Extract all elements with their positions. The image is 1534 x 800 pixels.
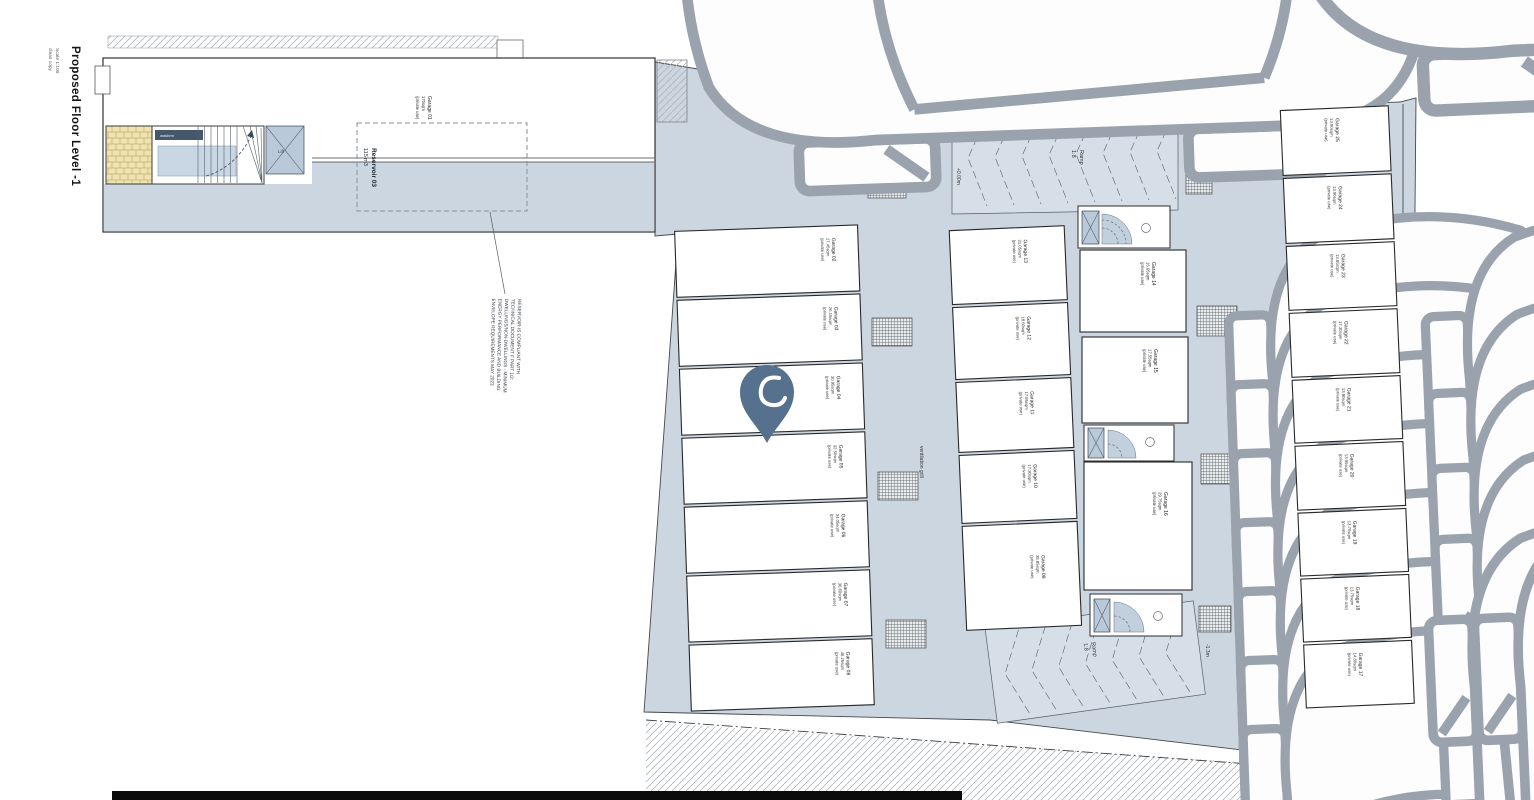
svg-text:-1.3m: -1.3m [1204,644,1210,657]
svg-text:30.95sqm: 30.95sqm [830,376,835,395]
svg-text:(private use): (private use) [1333,321,1338,345]
strip-top-step [497,40,523,58]
compliance-note: RESERVOIR IS COMPLIANT WITH TECHNICAL DO… [489,299,522,393]
ventilation-grill-label: ventilation grill [918,446,924,478]
page-note: clean copy [47,48,53,72]
ventilation-grill [878,472,918,500]
svg-text:(private use): (private use) [1327,186,1332,210]
svg-text:ventilation grill: ventilation grill [918,446,924,478]
svg-text:(private use): (private use) [1012,240,1018,264]
svg-text:(private use): (private use) [827,445,832,469]
svg-text:13.90sqm: 13.90sqm [1332,186,1337,205]
garage-bay-13 [949,226,1067,305]
svg-text:17.30sqm: 17.30sqm [1338,321,1343,340]
svg-text:170sqm: 170sqm [421,96,426,111]
ventilation-grill [872,318,912,346]
svg-text:(private use): (private use) [1335,388,1340,412]
svg-text:1:8: 1:8 [1082,643,1089,651]
svg-text:32.50sqm: 32.50sqm [833,445,838,464]
svg-text:(private use): (private use) [1015,317,1021,341]
svg-text:(private use): (private use) [832,583,837,607]
page-scale: Scale 1:100 [54,48,60,74]
svg-text:(private use): (private use) [1029,555,1035,579]
svg-text:(private use): (private use) [1022,464,1028,488]
svg-text:Reservoir 03: Reservoir 03 [370,148,377,187]
svg-text:13.90sqm: 13.90sqm [1329,118,1334,137]
svg-text:(private use): (private use) [822,307,827,331]
ramp-top-level-start: +0.00m [955,168,961,185]
svg-text:13.85sqm: 13.85sqm [1335,254,1340,273]
garage-bay-16 [1084,462,1192,590]
svg-text:16.05sqm: 16.05sqm [1146,262,1151,281]
svg-text:(private use): (private use) [825,376,830,400]
garage-bay-15 [1082,337,1188,423]
svg-text:13.95sqm: 13.95sqm [1344,454,1349,473]
svg-text:DWELLINGS/NON-DWELLINGS - MINI: DWELLINGS/NON-DWELLINGS - MINIMUM [502,299,509,393]
svg-text:13.70sqm: 13.70sqm [1347,521,1352,540]
svg-text:(private use): (private use) [1324,118,1329,142]
svg-text:ENVELOPE REQUIREMENTS MAY 2023: ENVELOPE REQUIREMENTS MAY 2023 [489,299,496,387]
svg-text:36.60sqm: 36.60sqm [837,583,842,602]
svg-text:115 m3: 115 m3 [362,148,368,166]
lift-core-top [1078,206,1170,248]
svg-text:(private use): (private use) [820,238,825,262]
svg-text:(private use): (private use) [1338,454,1343,478]
svg-text:clean copy: clean copy [47,48,53,72]
svg-text:27.45sqm: 27.45sqm [825,238,830,257]
svg-text:(private use): (private use) [1344,587,1349,611]
svg-text:(private use): (private use) [1152,492,1157,516]
svg-text:(private use): (private use) [415,96,420,120]
svg-text:(private use): (private use) [1330,254,1335,278]
garage-bay-10 [959,450,1077,523]
hall-corner-hatch-block [657,60,687,122]
svg-text:1:8: 1:8 [1070,150,1076,158]
svg-text:(private use): (private use) [834,652,839,676]
stair-core: washrm [152,126,264,184]
svg-text:ENERGY PERFORMANCE AND BUILDIN: ENERGY PERFORMANCE AND BUILDING [496,299,503,391]
garage-bay-11 [956,378,1074,453]
floor-plan-canvas: washrm Lift Garage 01 170sqm (private us… [0,0,1534,800]
svg-text:Scale 1:100: Scale 1:100 [54,48,60,74]
svg-text:34.05sqm: 34.05sqm [835,514,840,533]
strip-left-notch [95,66,110,94]
svg-text:TECHNICAL DOCUMENT F PART 1/2:: TECHNICAL DOCUMENT F PART 1/2: [509,299,515,380]
washroom-label: washrm [160,133,175,138]
svg-text:(private use): (private use) [1140,262,1145,286]
svg-text:17.55sqm: 17.55sqm [1148,349,1153,368]
svg-text:14.80sqm: 14.80sqm [1353,653,1358,672]
svg-text:29.75sqm: 29.75sqm [1158,492,1163,511]
svg-text:+0.00m: +0.00m [955,168,961,185]
svg-text:46.25sqm: 46.25sqm [840,652,845,671]
garage-bay-09 [962,521,1081,630]
svg-text:RESERVOIR IS COMPLIANT WITH: RESERVOIR IS COMPLIANT WITH [516,299,522,374]
garage-bay-14 [1080,250,1186,332]
strip-top-wall-hatch [108,36,498,48]
lift-core-bottom [1090,594,1182,636]
entrance-lift: Lift [266,126,304,174]
svg-text:(private use): (private use) [1018,391,1024,415]
svg-text:26.15sqm: 26.15sqm [828,307,833,326]
garage-bay-12 [953,303,1071,380]
ventilation-grill [1199,606,1231,632]
svg-text:Proposed Floor Level -1: Proposed Floor Level -1 [69,46,81,186]
ventilation-grill [886,620,926,648]
svg-text:(private use): (private use) [1142,349,1147,373]
svg-text:13.90sqm: 13.90sqm [1341,388,1346,407]
svg-text:(private use): (private use) [830,514,835,538]
lift-core-middle [1084,425,1174,461]
floor-plan-page: washrm Lift Garage 01 170sqm (private us… [0,0,1534,800]
page-title: Proposed Floor Level -1 [69,46,81,186]
vestibule [106,126,152,184]
svg-text:(private use): (private use) [1347,653,1352,677]
lift-label: Lift [278,149,285,154]
ramp-bottom-level-end: -1.3m [1204,644,1210,657]
svg-text:(private use): (private use) [1341,521,1346,545]
bottom-black-bar [112,791,962,800]
svg-text:13.75sqm: 13.75sqm [1350,587,1355,606]
svg-text:Ramp: Ramp [1078,150,1084,165]
